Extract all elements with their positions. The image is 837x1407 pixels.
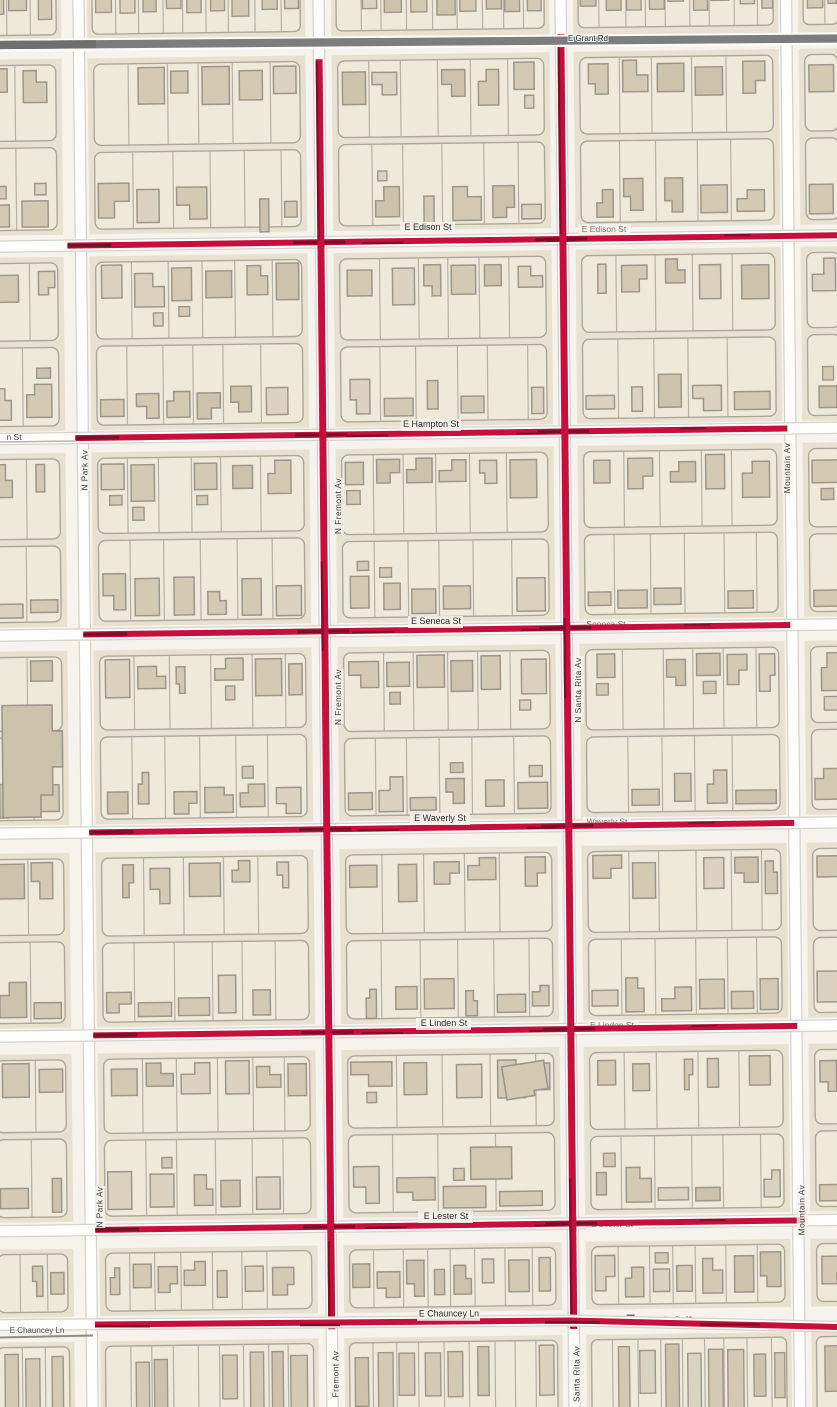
- svg-text:N Santa Rita Av: N Santa Rita Av: [574, 657, 583, 723]
- svg-text:E Edison St: E Edison St: [404, 222, 452, 232]
- svg-text:E Chauncey Ln: E Chauncey Ln: [10, 1326, 65, 1335]
- svg-text:E Waverly St: E Waverly St: [414, 813, 466, 823]
- svg-text:E Grant Rd: E Grant Rd: [568, 34, 608, 43]
- svg-text:E Lester St: E Lester St: [424, 1211, 469, 1221]
- svg-text:E Linden St: E Linden St: [421, 1018, 468, 1028]
- svg-text:E Edison St: E Edison St: [582, 224, 627, 234]
- svg-text:E Hampton St: E Hampton St: [403, 419, 460, 429]
- svg-text:n St: n St: [6, 432, 22, 442]
- svg-text:Santa Rita Av: Santa Rita Av: [573, 1346, 582, 1402]
- svg-text:N Park Av: N Park Av: [96, 1186, 105, 1227]
- svg-text:N Fremont Av: N Fremont Av: [334, 669, 343, 725]
- svg-text:E Chauncey Ln: E Chauncey Ln: [419, 1309, 479, 1319]
- svg-text:E Seneca St: E Seneca St: [411, 616, 462, 626]
- svg-text:N Fremont Av: N Fremont Av: [334, 478, 343, 534]
- svg-text:Mountain Av: Mountain Av: [798, 1184, 807, 1235]
- svg-text:Mountain Av: Mountain Av: [783, 442, 792, 493]
- svg-text:N Park Av: N Park Av: [81, 449, 90, 490]
- svg-text:Fremont Av: Fremont Av: [332, 1350, 341, 1397]
